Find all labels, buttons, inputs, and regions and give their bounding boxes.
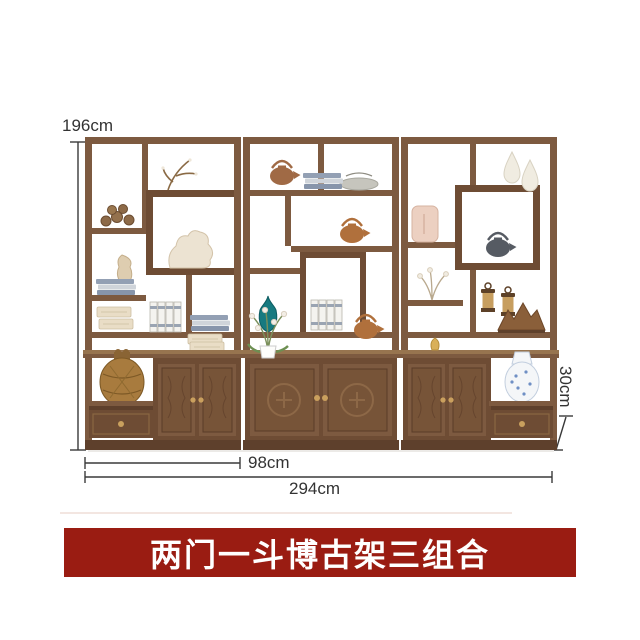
plinth — [85, 440, 241, 450]
floor-shadow — [88, 450, 554, 452]
decor-copper-teapot — [340, 219, 371, 243]
shelf-unit-left — [83, 137, 243, 450]
door-handle — [198, 397, 203, 402]
height-label: 196cm — [62, 116, 113, 136]
decor-teapot — [270, 161, 301, 185]
decor-porcelain-vase — [505, 352, 539, 402]
drawer-left — [89, 410, 153, 438]
product-image: 196cm 98cm 294cm 30cm 两门一斗博古架三组合 — [0, 0, 640, 640]
decor-white-sculpture — [169, 231, 213, 268]
decor-pinecones — [101, 205, 134, 227]
decor-books — [190, 315, 230, 331]
decor-figurine — [117, 255, 131, 283]
door-handle — [440, 397, 445, 402]
door-handle — [448, 397, 453, 402]
door-handle — [190, 397, 195, 402]
plinth — [401, 440, 557, 450]
decor-iron-teapot — [486, 233, 517, 257]
decor-pink-canister — [412, 206, 438, 242]
decor-tea-boxes — [188, 334, 224, 352]
cabinet-right-doors — [403, 358, 491, 442]
decor-box — [97, 307, 131, 317]
decor-books — [96, 279, 136, 295]
decor-branch — [161, 158, 197, 190]
door-handle — [314, 395, 320, 401]
total-width-label: 294cm — [289, 479, 340, 499]
shelf-unit-right — [399, 137, 559, 450]
plinth — [243, 440, 399, 450]
cabinet-left — [83, 349, 243, 450]
decor-flower-spray — [418, 268, 449, 300]
drawer-knob — [118, 421, 124, 427]
cabinet-right — [399, 350, 559, 450]
decor-books — [303, 173, 343, 189]
drawer-right — [491, 410, 553, 438]
decor-binders — [150, 302, 181, 332]
cabinet-left-doors — [153, 358, 241, 442]
decor-gold-figurine — [431, 338, 439, 350]
decor-white-vase — [522, 160, 538, 191]
separator-line — [60, 512, 512, 514]
decor-lanterns — [481, 283, 515, 316]
drawer-knob — [519, 421, 525, 427]
door-handle — [322, 395, 328, 401]
unit-width-label: 98cm — [248, 453, 290, 473]
depth-label: 30cm — [555, 366, 575, 408]
decor-binders — [311, 300, 342, 330]
decor-stone-plate — [340, 173, 378, 190]
decor-white-vase — [504, 152, 520, 183]
cabinet-middle — [241, 350, 401, 450]
decor-box — [99, 319, 133, 329]
shelf-unit-middle — [241, 137, 401, 450]
depth-dimension-line — [556, 417, 566, 450]
title-banner: 两门一斗博古架三组合 — [64, 528, 576, 577]
